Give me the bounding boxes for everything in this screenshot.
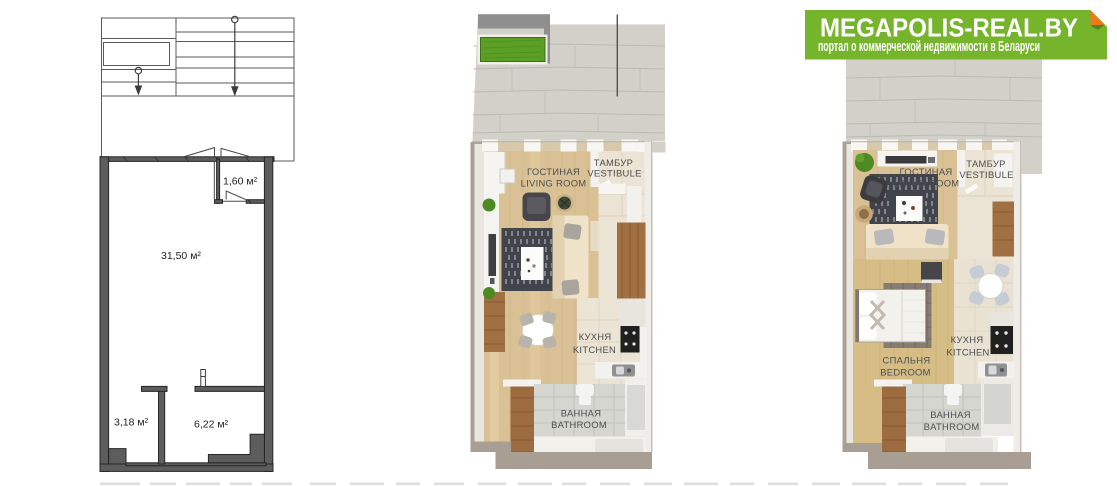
svg-text:MEGAPOLIS-REAL.BY: MEGAPOLIS-REAL.BY bbox=[820, 12, 1078, 42]
svg-text:VESTIBULE: VESTIBULE bbox=[959, 169, 1013, 180]
svg-text:ВАННАЯ: ВАННАЯ bbox=[930, 409, 971, 420]
svg-text:BEDROOM: BEDROOM bbox=[880, 367, 931, 378]
svg-text:31,50 м²: 31,50 м² bbox=[161, 250, 201, 262]
svg-text:VESTIBULE: VESTIBULE bbox=[587, 168, 641, 179]
svg-text:LIVING ROOM: LIVING ROOM bbox=[894, 178, 960, 189]
svg-text:KITCHEN: KITCHEN bbox=[573, 344, 616, 355]
svg-text:ТАМБУР: ТАМБУР bbox=[966, 158, 1005, 169]
svg-text:BATHROOM: BATHROOM bbox=[551, 419, 607, 430]
svg-text:ТАМБУР: ТАМБУР bbox=[594, 157, 633, 168]
svg-text:ВАННАЯ: ВАННАЯ bbox=[561, 408, 602, 419]
svg-text:ГОСТИНАЯ: ГОСТИНАЯ bbox=[900, 166, 953, 177]
svg-text:KITCHEN: KITCHEN bbox=[946, 347, 989, 358]
svg-text:3,18 м²: 3,18 м² bbox=[114, 416, 149, 428]
svg-text:СПАЛЬНЯ: СПАЛЬНЯ bbox=[883, 355, 931, 366]
svg-text:портал о коммерческой недвижим: портал о коммерческой недвижимости в Бел… bbox=[818, 39, 1040, 55]
svg-text:LIVING ROOM: LIVING ROOM bbox=[521, 178, 587, 189]
svg-text:КУХНЯ: КУХНЯ bbox=[951, 334, 984, 345]
svg-text:6,22 м²: 6,22 м² bbox=[194, 418, 229, 430]
svg-text:BATHROOM: BATHROOM bbox=[924, 421, 980, 432]
svg-text:1,60 м²: 1,60 м² bbox=[223, 176, 258, 188]
svg-text:ГОСТИНАЯ: ГОСТИНАЯ bbox=[527, 166, 580, 177]
svg-text:КУХНЯ: КУХНЯ bbox=[579, 331, 612, 342]
